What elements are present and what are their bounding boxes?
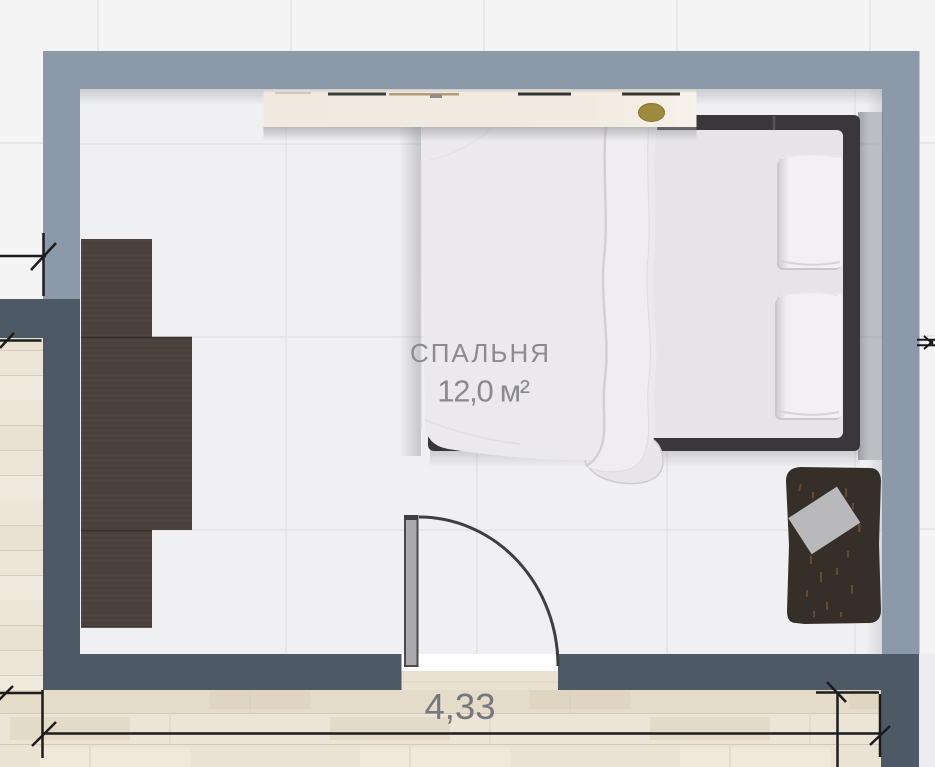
svg-text:12,0 м²: 12,0 м²	[437, 374, 529, 409]
svg-text:СПАЛЬНЯ: СПАЛЬНЯ	[410, 338, 551, 368]
svg-text:4,33: 4,33	[424, 686, 495, 727]
